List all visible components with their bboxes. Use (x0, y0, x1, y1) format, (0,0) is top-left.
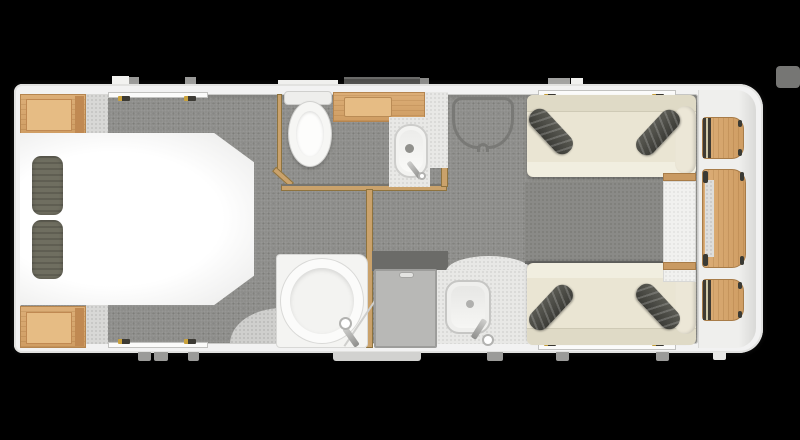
cropped-corner-artifact (776, 66, 800, 88)
wardrobe-edge (75, 308, 84, 346)
front-cabinet-trim (663, 173, 696, 181)
table-edge (703, 280, 711, 320)
table-leg-strip (705, 180, 714, 257)
occasional-table (702, 117, 744, 159)
vanity-drawer (344, 97, 392, 117)
bedside-wardrobe (20, 94, 86, 136)
occasional-table (702, 279, 744, 321)
bedroom-floor-speckle (86, 94, 108, 137)
wardrobe-door-panel (26, 312, 72, 344)
window-hinge (118, 96, 130, 101)
door-handle (399, 272, 414, 278)
corner-steady (713, 352, 726, 360)
wardrobe-edge (75, 96, 84, 134)
washroom-wall (277, 94, 282, 174)
window-hinge (184, 339, 196, 344)
washroom-wall (441, 165, 448, 187)
corner-steady (154, 352, 168, 361)
entry-door (374, 269, 437, 348)
corner-steady (487, 352, 503, 361)
table-clip (740, 172, 744, 181)
table-clip (738, 311, 742, 318)
basin-tap-head (418, 172, 426, 180)
bed-pillow (32, 220, 63, 279)
basin-drain (405, 144, 414, 153)
kitchen-tap-head (482, 334, 494, 346)
corner-steady (188, 352, 199, 361)
sofa-backrest (527, 328, 696, 345)
floorplan-canvas (0, 0, 800, 440)
shower-mixer-head (339, 317, 352, 330)
table-clip (703, 171, 708, 183)
wardrobe-door-panel (26, 99, 72, 131)
table-edge (703, 118, 711, 158)
corner-steady (656, 352, 669, 361)
occasional-table-large (702, 169, 746, 268)
table-clip (738, 282, 742, 289)
bedroom-floor-speckle (86, 301, 108, 344)
lounge-rug (525, 182, 665, 264)
front-cabinet-trim (663, 262, 696, 270)
toilet-seat (296, 111, 324, 157)
corner-steady (556, 352, 569, 361)
window-hinge (184, 96, 196, 101)
window-hinge (118, 339, 130, 344)
table-clip (738, 120, 742, 127)
bedside-wardrobe (20, 306, 86, 348)
table-clip (738, 149, 742, 156)
dresser-outline-notch (477, 143, 489, 152)
table-clip (740, 256, 744, 265)
table-clip (703, 254, 708, 266)
door-threshold-shadow (372, 251, 448, 271)
bed-pillow (32, 156, 63, 215)
sink-drain (466, 300, 474, 308)
entry-step (345, 353, 415, 360)
dresser-unit-outline (452, 97, 514, 149)
corner-steady (138, 352, 151, 361)
